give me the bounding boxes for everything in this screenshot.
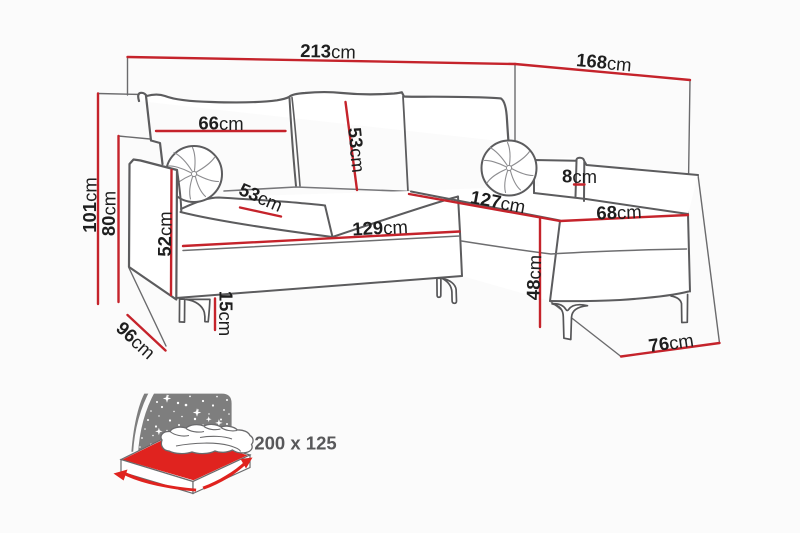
svg-text:68cm: 68cm bbox=[596, 201, 642, 224]
svg-text:129cm: 129cm bbox=[352, 216, 409, 240]
svg-text:200 x 125: 200 x 125 bbox=[254, 433, 336, 454]
svg-text:101cm: 101cm bbox=[79, 177, 100, 233]
svg-text:52cm: 52cm bbox=[154, 211, 175, 256]
svg-text:80cm: 80cm bbox=[98, 191, 119, 236]
svg-text:66cm: 66cm bbox=[198, 113, 243, 134]
svg-text:8cm: 8cm bbox=[562, 166, 597, 187]
svg-text:15cm: 15cm bbox=[216, 291, 237, 336]
svg-text:213cm: 213cm bbox=[300, 40, 356, 62]
svg-text:48cm: 48cm bbox=[522, 255, 545, 301]
